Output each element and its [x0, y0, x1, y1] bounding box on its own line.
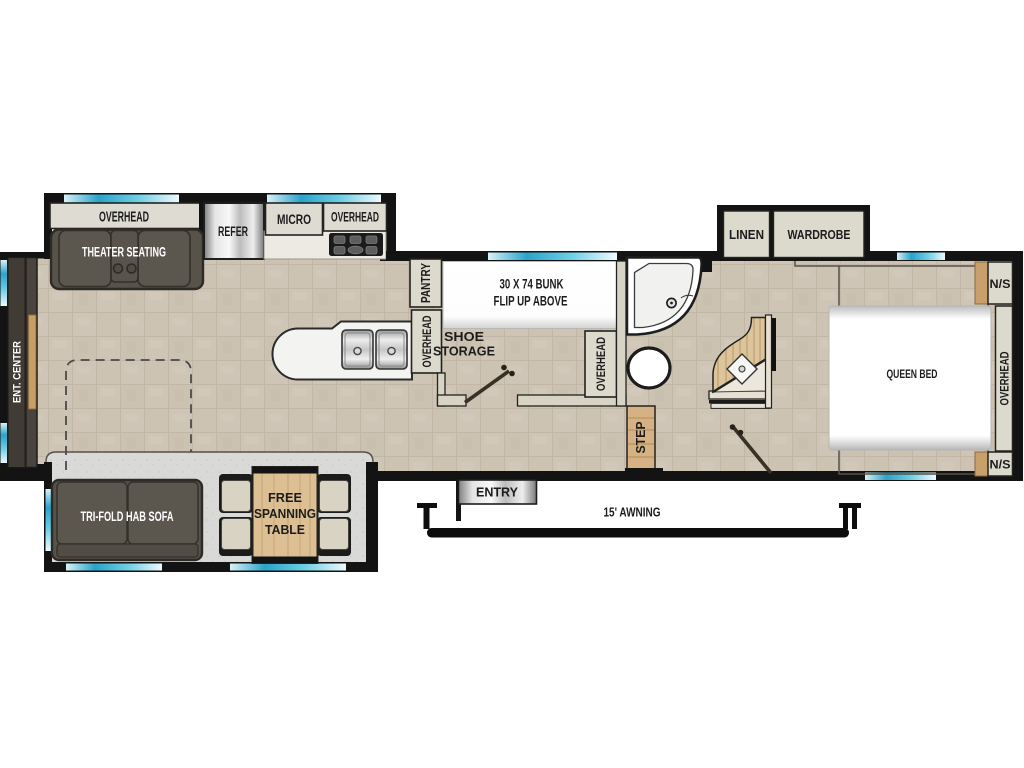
svg-text:OVERHEAD: OVERHEAD: [420, 315, 434, 367]
svg-text:TABLE: TABLE: [265, 522, 305, 537]
svg-text:STEP: STEP: [634, 422, 648, 454]
svg-text:OVERHEAD: OVERHEAD: [331, 210, 379, 225]
svg-text:PANTRY: PANTRY: [419, 262, 433, 303]
svg-text:OVERHEAD: OVERHEAD: [99, 210, 149, 226]
svg-text:STORAGE: STORAGE: [433, 344, 495, 359]
svg-text:QUEEN BED: QUEEN BED: [887, 367, 938, 381]
svg-text:SHOE: SHOE: [444, 329, 484, 344]
svg-text:OVERHEAD: OVERHEAD: [594, 337, 608, 391]
svg-text:THEATER SEATING: THEATER SEATING: [82, 245, 166, 260]
svg-text:TRI-FOLD HAB SOFA: TRI-FOLD HAB SOFA: [81, 509, 174, 524]
svg-text:N/S: N/S: [990, 279, 1011, 291]
svg-text:SPANNING: SPANNING: [254, 506, 316, 521]
svg-text:FREE: FREE: [268, 490, 302, 505]
svg-text:ENT. CENTER: ENT. CENTER: [12, 341, 24, 403]
svg-text:30 X 74 BUNK: 30 X 74 BUNK: [500, 277, 564, 292]
svg-text:LINEN: LINEN: [729, 228, 764, 242]
svg-text:15' AWNING: 15' AWNING: [604, 505, 661, 520]
svg-text:ENTRY: ENTRY: [476, 485, 518, 500]
svg-text:MICRO: MICRO: [277, 212, 311, 227]
svg-text:REFER: REFER: [218, 224, 248, 239]
svg-text:OVERHEAD: OVERHEAD: [1000, 352, 1012, 406]
svg-text:N/S: N/S: [990, 460, 1011, 472]
svg-text:WARDROBE: WARDROBE: [788, 228, 851, 242]
svg-text:FLIP UP ABOVE: FLIP UP ABOVE: [494, 294, 568, 309]
